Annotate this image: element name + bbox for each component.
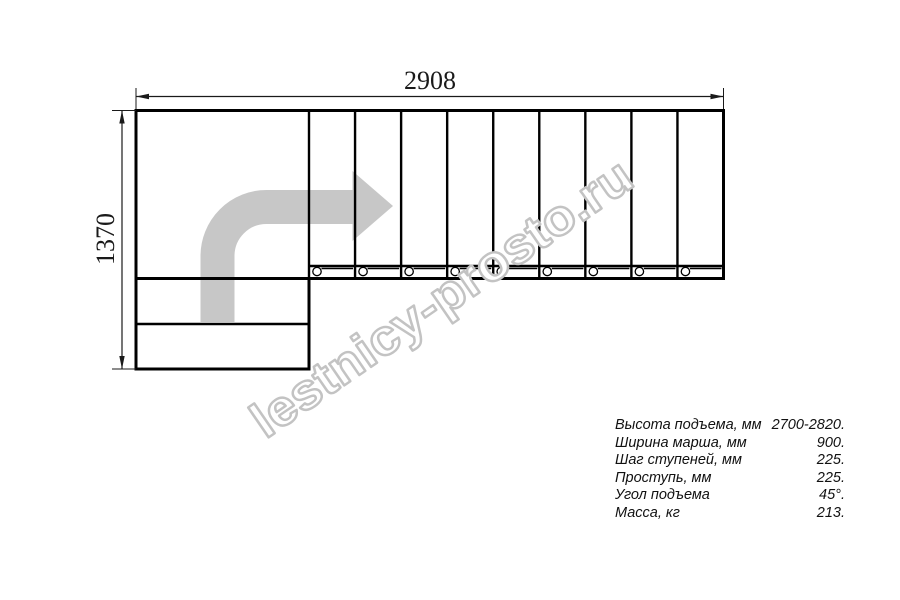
spec-value: 45°.	[819, 487, 845, 505]
spec-row: Угол подъема45°.	[615, 487, 845, 505]
spec-row: Шаг ступеней, мм225.	[615, 452, 845, 470]
spec-value: 2700-2820.	[772, 417, 845, 435]
screw-icon	[543, 267, 551, 275]
spec-row: Проступь, мм225.	[615, 470, 845, 488]
screw-icon	[681, 267, 689, 275]
spec-value: 225.	[817, 470, 845, 488]
spec-value: 225.	[817, 452, 845, 470]
spec-value: 900.	[817, 435, 845, 453]
spec-row: Высота подъема, мм2700-2820.	[615, 417, 845, 435]
dim-arrow-left-icon	[136, 94, 149, 99]
spec-label: Проступь, мм	[615, 470, 711, 488]
direction-arrow-shaft	[218, 207, 353, 322]
spec-label: Шаг ступеней, мм	[615, 452, 742, 470]
screw-icon	[589, 267, 597, 275]
spec-label: Высота подъема, мм	[615, 417, 762, 435]
dimension-width-label: 2908	[404, 66, 456, 95]
screw-icon	[313, 267, 321, 275]
dim-arrow-right-icon	[711, 94, 724, 99]
screw-icon	[405, 267, 413, 275]
dim-width: 2908	[136, 66, 724, 109]
dim-arrow-top-icon	[119, 111, 124, 124]
spec-label: Ширина марша, мм	[615, 435, 747, 453]
spec-table: Высота подъема, мм2700-2820.Ширина марша…	[615, 417, 845, 523]
spec-value: 213.	[817, 505, 845, 523]
dimension-height-label: 1370	[91, 213, 120, 265]
dim-arrow-bottom-icon	[119, 356, 124, 369]
spec-label: Масса, кг	[615, 505, 680, 523]
spec-label: Угол подъема	[615, 487, 710, 505]
direction-arrow-head-icon	[353, 171, 394, 241]
screw-icon	[635, 267, 643, 275]
spec-row: Ширина марша, мм900.	[615, 435, 845, 453]
direction-arrow	[218, 171, 394, 322]
dim-height: 1370	[91, 111, 136, 370]
screw-icon	[359, 267, 367, 275]
spec-row: Масса, кг213.	[615, 505, 845, 523]
